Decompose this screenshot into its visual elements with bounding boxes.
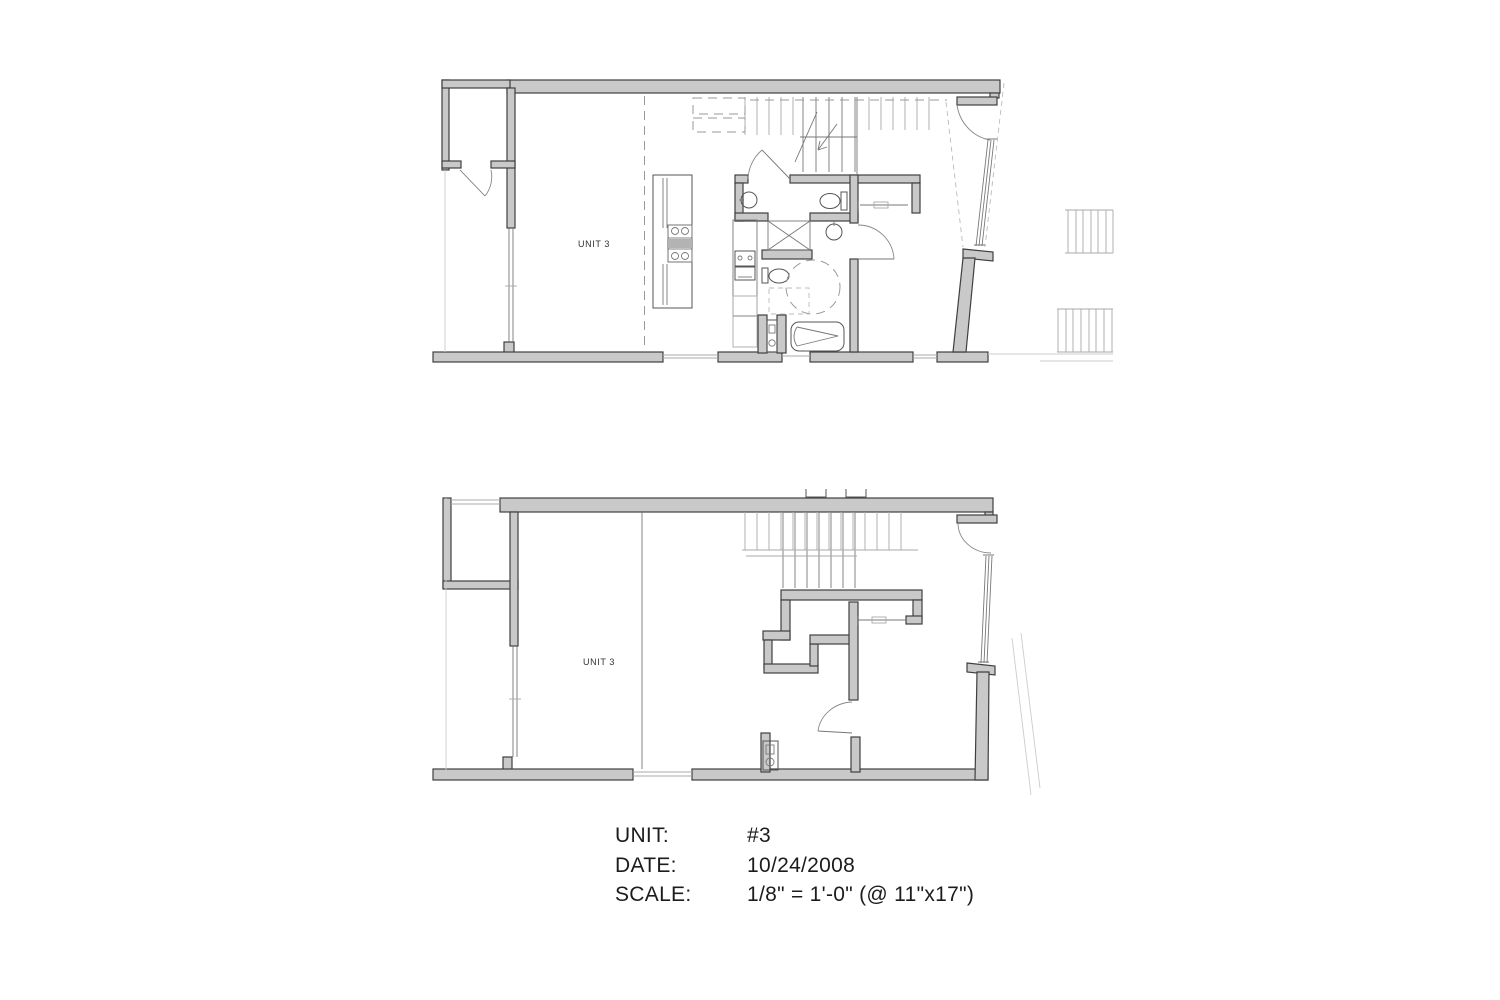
adjacent-unit-lines: [1012, 633, 1040, 795]
threshold-1: [663, 355, 718, 358]
niche-valve: [769, 340, 775, 346]
wall-bottom-2: [718, 352, 782, 362]
pocket-door: [858, 616, 906, 625]
lower-doors: [818, 523, 991, 733]
scale-value: 1/8" = 1'-0" (@ 11"x17"): [747, 883, 974, 913]
zig-wall-6: [810, 635, 855, 644]
railing-1: [1065, 210, 1113, 253]
bath-right-wall-upper: [850, 175, 858, 223]
date-label: DATE:: [615, 854, 747, 884]
zig-wall-7: [849, 602, 858, 700]
zig-wall-2: [763, 631, 790, 640]
zig-wall-9: [851, 737, 860, 772]
stair-treads-light: [745, 97, 793, 135]
window-left: [509, 228, 513, 342]
entry-door-swing: [958, 523, 991, 553]
wall-top: [500, 498, 993, 512]
stair-treads-light: [745, 512, 901, 550]
closet-wall-right: [507, 88, 515, 228]
wall-return: [443, 581, 518, 589]
entry-door-swing: [957, 105, 990, 140]
stair-treads: [803, 97, 857, 175]
title-row-date: DATE: 10/24/2008: [615, 854, 974, 884]
upper-floor-plan: UNIT 3: [433, 80, 1113, 362]
upper-cabinet-dashed-2: [693, 118, 745, 132]
wall-bottom-3: [810, 352, 913, 362]
wall-top: [507, 80, 1000, 93]
toilet-tank-2: [762, 268, 768, 283]
burner: [672, 253, 679, 260]
powder-room: [739, 192, 847, 210]
closet-door-leaf: [460, 170, 485, 196]
hall-closet: [858, 201, 908, 209]
entry-wall-stub: [957, 515, 997, 523]
threshold: [633, 772, 692, 776]
bath-right-wall-lower: [850, 259, 858, 352]
title-row-unit: UNIT: #3: [615, 824, 974, 854]
balcony-railings: [988, 210, 1113, 361]
closet-wall-left: [442, 80, 449, 170]
accessible-turning-circle: [786, 260, 840, 314]
main-bathroom: [762, 260, 844, 351]
zig-wall-5: [810, 644, 818, 666]
hall-door-swing: [858, 225, 894, 259]
railing-2: [1057, 309, 1113, 352]
window-stub: [504, 342, 514, 353]
oven-symbol: [735, 267, 755, 280]
burner: [682, 253, 689, 260]
window-left: [513, 646, 517, 757]
base-cabinet: [733, 296, 757, 347]
bathtub-slope-lines: [794, 327, 838, 346]
wall-left: [443, 498, 451, 588]
bath-door-leaf: [762, 150, 790, 179]
slanted-window: [974, 139, 997, 246]
scale-label: SCALE:: [615, 883, 747, 913]
stair-treads: [783, 513, 855, 588]
toilet-tank: [841, 192, 847, 210]
walkway-lines: [988, 354, 1113, 361]
slanted-window: [978, 555, 994, 663]
lower-walls: [433, 489, 997, 780]
wall-bottom-4: [937, 352, 988, 362]
roof-brackets: [806, 489, 866, 497]
slant-wall: [975, 672, 989, 780]
shower-wall: [762, 250, 812, 259]
unit-value: #3: [747, 824, 974, 854]
window-stub: [503, 757, 512, 770]
window-bottom-right: [913, 355, 937, 358]
niche-wall-right: [777, 315, 786, 353]
cooktop-band: [668, 239, 692, 248]
bath-door-swing: [748, 150, 762, 179]
projection-dashed-lines: [946, 83, 1004, 247]
entry-wall-stub: [957, 97, 997, 105]
room-door-swing: [818, 702, 852, 731]
kitchen-island: [653, 175, 692, 308]
closet-wall-top: [442, 80, 510, 88]
toilet-symbol-2: [769, 269, 789, 283]
vanity-sink-symbol: [826, 224, 842, 240]
stair-treads-upper-flight: [869, 97, 929, 130]
unit-label: UNIT:: [615, 824, 747, 854]
lower-floor-plan: UNIT 3: [433, 489, 1040, 795]
kitchen-counter: [733, 220, 777, 352]
room-label-lower: UNIT 3: [583, 657, 615, 667]
upper-walls: [433, 80, 1000, 362]
upper-windows: [445, 139, 997, 358]
lower-windows: [446, 498, 994, 778]
wall-bottom-1: [433, 769, 633, 780]
page: { "page": { "background": "#ffffff" }, "…: [0, 0, 1500, 1000]
bath-top-wall-a: [735, 175, 748, 183]
niche-fixture: [769, 325, 775, 333]
title-row-scale: SCALE: 1/8" = 1'-0" (@ 11"x17"): [615, 883, 974, 913]
counter-run: [733, 220, 757, 316]
burner: [672, 228, 679, 235]
cooktop-symbol: [668, 225, 692, 262]
wall-bottom-1: [433, 352, 663, 362]
upper-cabinet-dashed-1: [693, 98, 745, 114]
sill-line: [451, 500, 500, 504]
under-stair-wall: [781, 590, 922, 600]
slant-wall: [953, 258, 975, 352]
room-wall-return: [906, 616, 922, 624]
stairs-lower: [742, 512, 918, 588]
demising-wall: [510, 512, 518, 646]
title-block: UNIT: #3 DATE: 10/24/2008 SCALE: 1/8" = …: [615, 824, 974, 913]
wall-bottom-2: [692, 769, 988, 780]
closet-return-right: [491, 161, 515, 168]
toilet-symbol: [820, 194, 840, 209]
shower: [768, 221, 842, 250]
stairs-upper: [745, 97, 929, 175]
closet-return-left: [442, 161, 461, 168]
range-knob: [748, 256, 752, 260]
range-knob: [738, 256, 742, 260]
closet-door-swing: [485, 170, 492, 196]
date-value: 10/24/2008: [747, 854, 974, 884]
clear-floor-dashed: [769, 288, 809, 314]
burner: [682, 228, 689, 235]
room-label-upper: UNIT 3: [578, 239, 610, 249]
nook-wall: [912, 183, 920, 213]
stair-landing-lines: [742, 550, 918, 556]
shower-x: [768, 221, 810, 250]
room-door-leaf: [818, 731, 852, 733]
niche-wall-left: [758, 315, 767, 353]
island-counter-lines: [663, 178, 667, 305]
